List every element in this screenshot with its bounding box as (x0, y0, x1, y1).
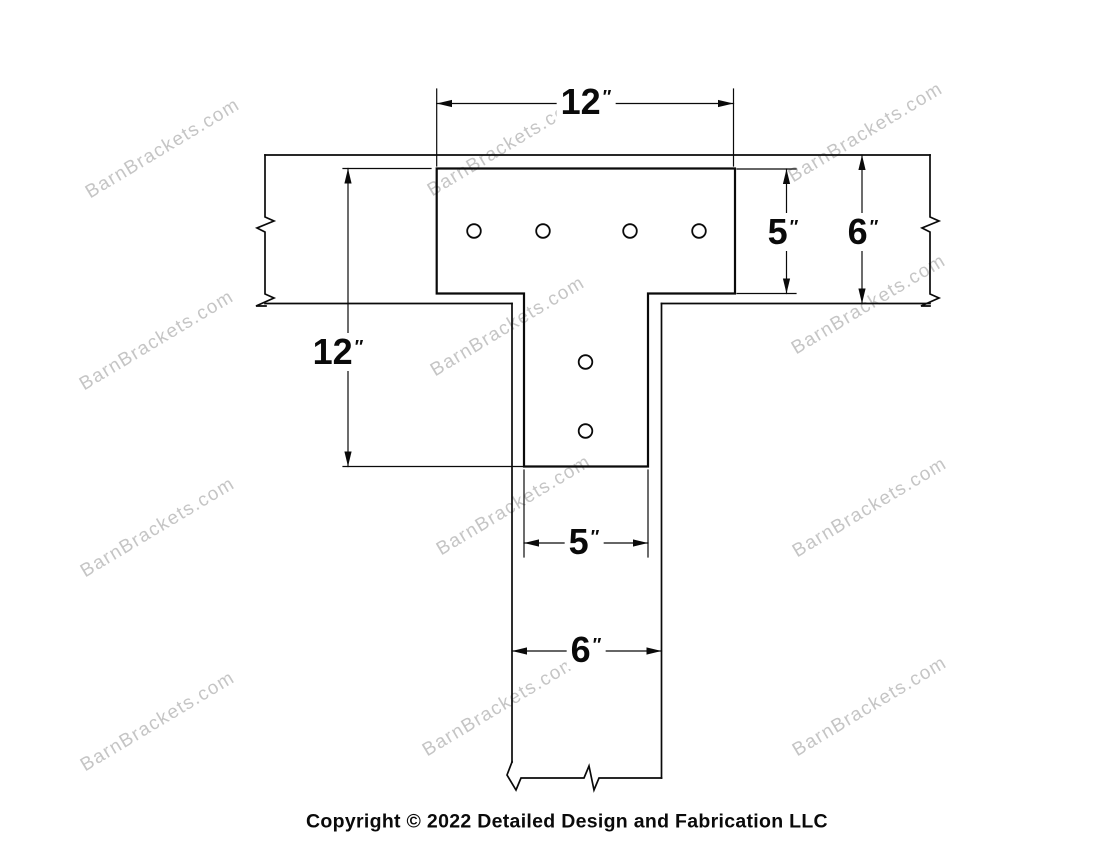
inch-mark: ″ (355, 337, 364, 357)
inch-mark: ″ (591, 527, 600, 547)
beam-right-edge-break-line (921, 155, 939, 306)
dimension-label-top-plate-width: 12″ (557, 83, 616, 121)
beam-left-edge-break-line (256, 155, 274, 306)
dimension-label-stem-width: 5″ (565, 523, 604, 561)
inch-mark: ″ (603, 87, 612, 107)
copyright-text: Copyright © 2022 Detailed Design and Fab… (306, 811, 828, 834)
dimension-label-beam-depth: 6″ (844, 213, 883, 251)
beam-outline (256, 155, 939, 306)
bolt-hole (623, 224, 637, 238)
inch-mark: ″ (870, 217, 879, 237)
bracket-line-drawing (0, 0, 1100, 850)
dimension-label-post-width: 6″ (567, 631, 606, 669)
drawing-canvas: BarnBrackets.com BarnBrackets.com BarnBr… (0, 0, 1100, 850)
extension-lines (343, 89, 796, 557)
bolt-hole (579, 355, 593, 369)
inch-mark: ″ (593, 635, 602, 655)
post-bottom-break-line (507, 762, 662, 790)
inch-mark: ″ (790, 217, 799, 237)
dimension-label-top-plate-height: 5″ (764, 213, 803, 251)
bracket-outline (437, 169, 735, 467)
arrowheads (344, 100, 865, 655)
bolt-hole (536, 224, 550, 238)
bolt-hole (692, 224, 706, 238)
bolt-hole (467, 224, 481, 238)
dimension-label-overall-height: 12″ (309, 333, 368, 371)
bolt-holes (467, 224, 706, 438)
dimension-lines (348, 104, 862, 652)
bolt-hole (579, 424, 593, 438)
